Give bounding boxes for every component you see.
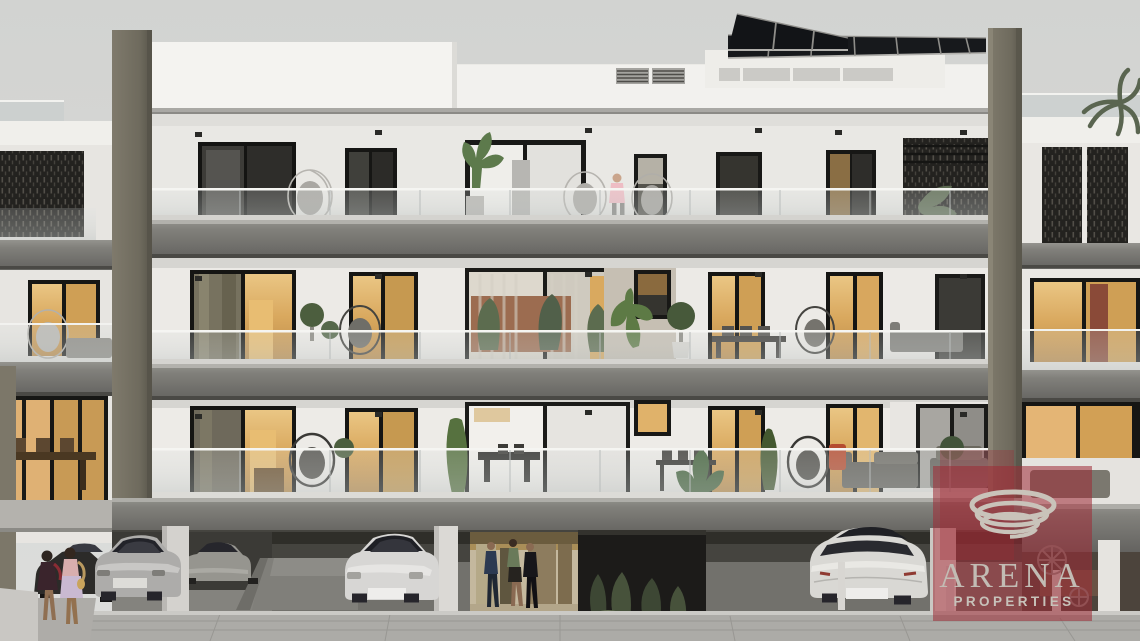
svg-text:ARENA: ARENA [939,556,1085,595]
svg-text:PROPERTIES: PROPERTIES [953,594,1074,609]
